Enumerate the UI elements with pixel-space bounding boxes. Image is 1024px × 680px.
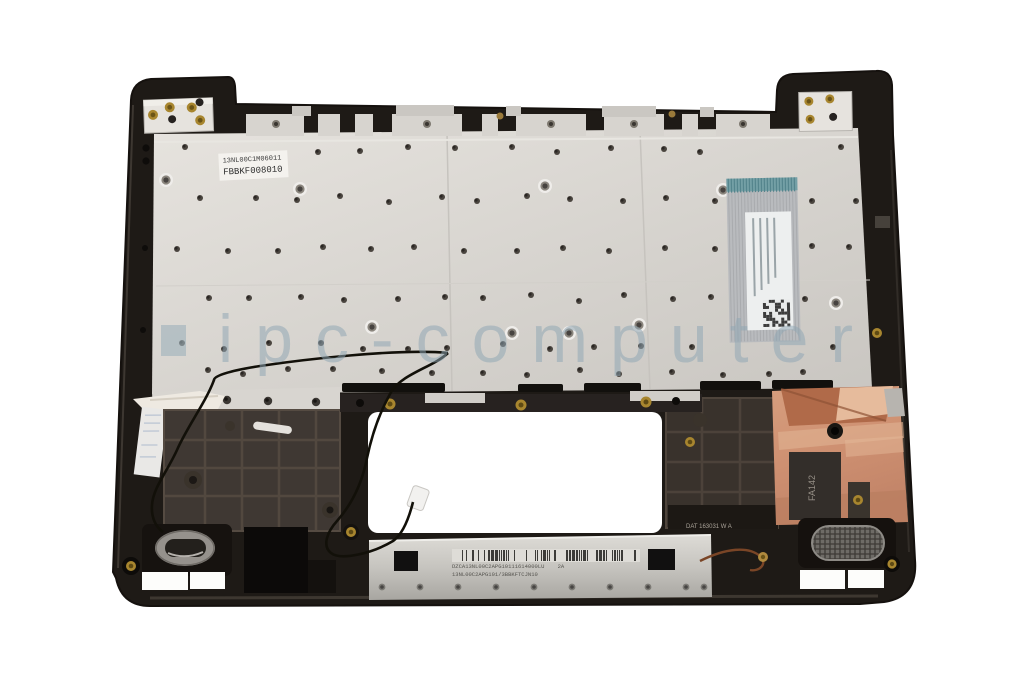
svg-text:DAT 163031 W A: DAT 163031 W A <box>686 524 732 530</box>
svg-text:DZCA13NL00C2APG10111614000LU: DZCA13NL00C2APG10111614000LU 2A <box>452 563 565 570</box>
svg-text:13NL00C2APG101/3BBKFTCJN10: 13NL00C2APG101/3BBKFTCJN10 <box>452 571 538 578</box>
svg-text:ipc-computer: ipc-computer <box>218 301 875 377</box>
svg-text:FA142: FA142 <box>807 475 817 501</box>
